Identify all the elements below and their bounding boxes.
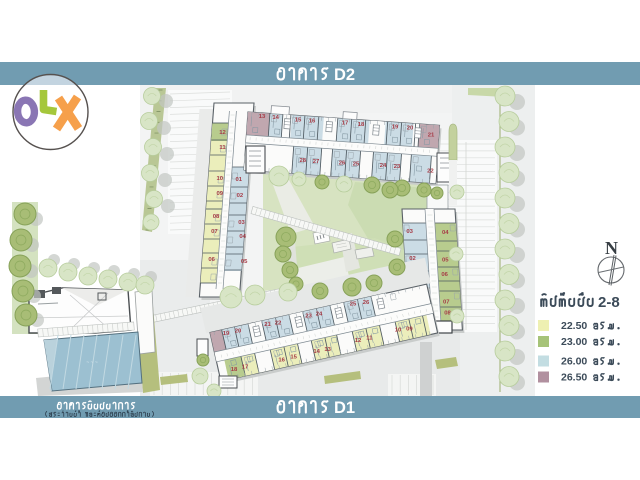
svg-text:11: 11 (219, 145, 226, 151)
svg-text:06: 06 (208, 257, 215, 263)
svg-text:24: 24 (380, 163, 387, 169)
svg-text:10: 10 (217, 176, 224, 182)
svg-text:24: 24 (316, 312, 323, 318)
svg-text:03: 03 (406, 229, 413, 235)
svg-text:26: 26 (339, 161, 346, 167)
svg-text:18: 18 (231, 367, 238, 373)
svg-text:05: 05 (442, 258, 449, 264)
svg-text:19: 19 (223, 331, 230, 337)
svg-text:23: 23 (305, 314, 312, 320)
svg-text:26.50: 26.50 (561, 372, 587, 384)
svg-text:21: 21 (264, 322, 271, 328)
svg-text:09: 09 (217, 191, 224, 197)
svg-text:16: 16 (278, 358, 285, 364)
svg-text:15: 15 (295, 118, 302, 124)
svg-text:20: 20 (407, 126, 414, 132)
svg-text:26.00: 26.00 (561, 356, 587, 368)
svg-text:25: 25 (353, 162, 360, 168)
svg-text:14: 14 (272, 115, 279, 121)
svg-text:07: 07 (443, 300, 450, 306)
svg-text:15: 15 (290, 355, 297, 361)
svg-text:05: 05 (241, 259, 248, 265)
svg-text:08: 08 (213, 214, 220, 220)
svg-text:22: 22 (275, 321, 282, 327)
svg-text:21: 21 (428, 133, 435, 139)
svg-text:03: 03 (238, 220, 245, 226)
svg-text:25: 25 (350, 302, 357, 308)
svg-text:26: 26 (363, 300, 370, 306)
svg-text:19: 19 (392, 125, 399, 131)
svg-text:23: 23 (394, 164, 401, 170)
svg-text:20: 20 (235, 329, 242, 335)
svg-text:04: 04 (239, 234, 246, 240)
svg-text:12: 12 (219, 130, 226, 136)
svg-text:22.50: 22.50 (561, 320, 587, 332)
svg-text:28: 28 (300, 158, 307, 164)
svg-text:18: 18 (358, 122, 365, 128)
svg-text:23.00: 23.00 (561, 336, 587, 348)
svg-text:13: 13 (259, 114, 266, 120)
svg-text:11: 11 (366, 336, 373, 342)
svg-text:~ ~ ~: ~ ~ ~ (86, 360, 98, 366)
svg-text:27: 27 (313, 159, 320, 165)
svg-text:17: 17 (242, 365, 249, 371)
svg-text:14: 14 (313, 349, 320, 355)
svg-text:17: 17 (342, 121, 349, 127)
svg-text:13: 13 (324, 347, 331, 353)
svg-text:D2: D2 (334, 66, 355, 84)
svg-text:16: 16 (309, 119, 316, 125)
svg-text:12: 12 (355, 338, 362, 344)
svg-text:01: 01 (236, 177, 243, 183)
svg-text:04: 04 (442, 230, 449, 236)
svg-text:09: 09 (406, 327, 413, 333)
svg-text:2-8: 2-8 (598, 294, 620, 311)
svg-text:22: 22 (427, 169, 434, 175)
svg-text:10: 10 (395, 328, 402, 334)
svg-text:07: 07 (211, 229, 218, 235)
svg-text:D1: D1 (334, 399, 355, 417)
svg-text:N: N (605, 238, 618, 258)
svg-text:06: 06 (441, 272, 448, 278)
svg-text:02: 02 (237, 193, 244, 199)
